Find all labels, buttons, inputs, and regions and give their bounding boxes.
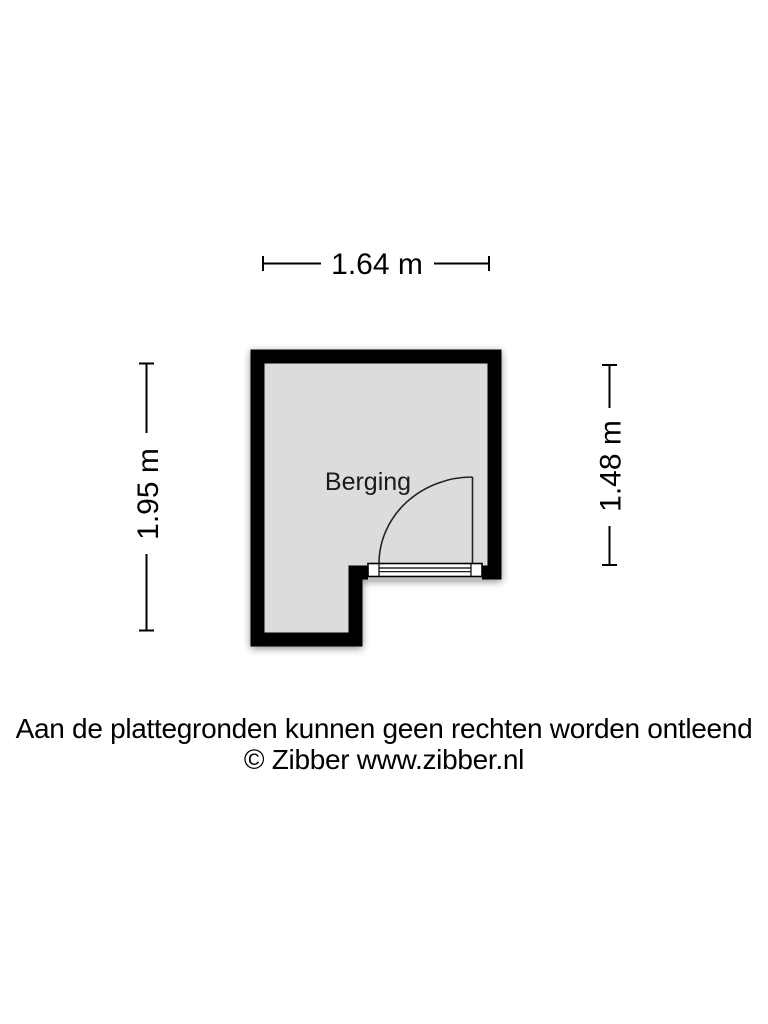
dimension-left: 1.95 m — [132, 364, 165, 631]
dimension-right-label: 1.48 m — [595, 420, 628, 512]
floorplan-canvas: Berging 1.64 m 1.95 m 1.48 m — [0, 0, 768, 1024]
footer: Aan de plattegronden kunnen geen rechten… — [0, 713, 768, 775]
floorplan-page: Berging 1.64 m 1.95 m 1.48 m Aan de — [0, 0, 768, 1024]
dimension-left-label: 1.95 m — [132, 448, 165, 540]
room-floor — [265, 364, 488, 633]
footer-copyright: © Zibber www.zibber.nl — [0, 744, 768, 775]
room-label: Berging — [325, 468, 411, 496]
door-sill-icon — [368, 564, 482, 577]
door-opening-shadow — [368, 578, 482, 580]
dimension-top: 1.64 m — [263, 248, 489, 281]
dimension-right: 1.48 m — [595, 365, 628, 565]
dimension-top-label: 1.64 m — [331, 248, 423, 281]
footer-disclaimer: Aan de plattegronden kunnen geen rechten… — [0, 713, 768, 744]
